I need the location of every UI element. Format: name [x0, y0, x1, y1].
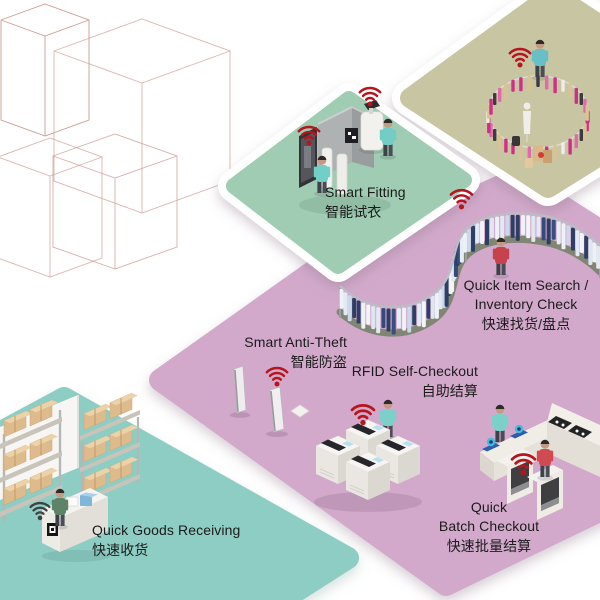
self-checkout-kiosk: [346, 452, 390, 500]
smart-fitting-label: Smart Fitting 智能试衣: [325, 183, 406, 222]
smart-anti-theft-label: Smart Anti-Theft 智能防盗: [223, 333, 347, 372]
smart-fitting-label-zh: 智能试衣: [325, 203, 406, 222]
rfid-self-checkout-label-en: RFID Self-Checkout: [346, 362, 478, 381]
quick-item-search-label-en1: Quick Item Search /: [448, 276, 600, 295]
smart-anti-theft-label-en: Smart Anti-Theft: [223, 333, 347, 352]
wireframe-cube: [54, 19, 230, 213]
quick-item-search-label: Quick Item Search / Inventory Check 快速找货…: [448, 276, 600, 334]
quick-item-search-label-zh: 快速找货/盘点: [448, 315, 600, 334]
quick-batch-checkout-label-zh: 快速批量结算: [418, 537, 560, 556]
quick-batch-checkout-label-en1: Quick: [418, 498, 560, 517]
wireframe-cube: [0, 138, 102, 277]
quick-goods-receiving-label-en: Quick Goods Receiving: [92, 521, 240, 540]
quick-batch-checkout-label: Quick Batch Checkout 快速批量结算: [418, 498, 560, 556]
wireframe-cubes: [0, 4, 230, 277]
rfid-self-checkout-label: RFID Self-Checkout 自助结算: [346, 362, 478, 401]
wireframe-cube: [1, 4, 89, 136]
quick-batch-checkout-label-en2: Batch Checkout: [418, 517, 560, 536]
quick-goods-receiving-label: Quick Goods Receiving 快速收货: [92, 521, 240, 560]
scene: Smart Fitting 智能试衣 Quick Item Search / I…: [0, 0, 600, 600]
smart-anti-theft-label-zh: 智能防盗: [223, 353, 347, 372]
quick-item-search-label-en2: Inventory Check: [448, 295, 600, 314]
wireframe-cube: [53, 134, 177, 269]
quick-goods-receiving-label-zh: 快速收货: [92, 541, 240, 560]
smart-fitting-label-en: Smart Fitting: [325, 183, 406, 202]
rfid-self-checkout-label-zh: 自助结算: [346, 382, 478, 401]
